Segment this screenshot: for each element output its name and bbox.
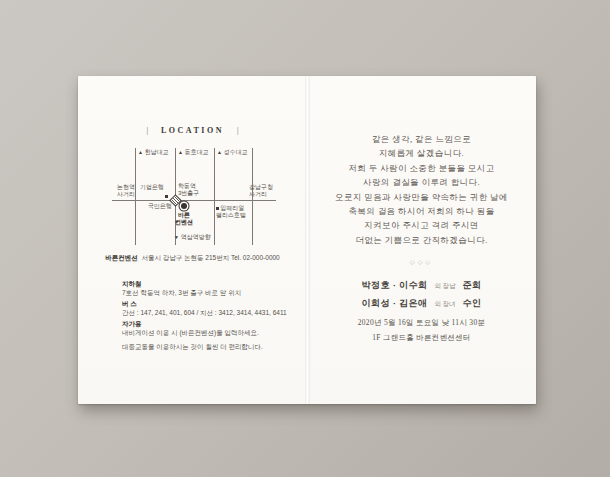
transit-note: 대중교통을 이용하시는 것이 훨씬 더 편리합니다. xyxy=(122,343,287,352)
ibk-bank-marker-icon xyxy=(165,195,168,198)
bus-description: 간선 : 147, 241, 401, 604 / 지선 : 3412, 341… xyxy=(122,309,287,318)
greeting-line: 같은 생각, 같은 느낌으로 xyxy=(307,132,536,146)
bus-heading: 버 스 xyxy=(122,300,287,309)
location-title: LOCATION xyxy=(161,126,224,135)
card-fold xyxy=(305,76,310,404)
car-heading: 자가용 xyxy=(122,320,287,329)
hotel-marker-icon xyxy=(216,207,219,210)
venue-address-detail: 서울시 강남구 논현동 215번지 Tel. 02-000-0000 xyxy=(141,254,279,261)
venue-address-name: 바른컨벤션 xyxy=(105,254,138,261)
groom-relation: 의 장남 xyxy=(434,282,455,289)
event-venue: 1F 그랜드홀 바른컨벤션센터 xyxy=(307,330,536,345)
yeoksam-direction-label: ▼ 역삼역방향 xyxy=(174,234,211,241)
greeting-line: 지혜롭게 살겠습니다. xyxy=(307,146,536,160)
subway-heading: 지하철 xyxy=(122,280,287,289)
location-header: |LOCATION| xyxy=(78,126,307,135)
greeting-line: 저희 두 사람이 소중한 분들을 모시고 xyxy=(307,161,536,175)
left-page: |LOCATION| ▲ 한남대교 ▲ 동호대교 ▲ 성수대교 논현역 사거리 xyxy=(78,76,307,404)
up-triangle-icon: ▲ xyxy=(138,149,143,155)
bride-parents: 이희성 · 김은애 xyxy=(361,298,427,308)
right-page: 같은 생각, 같은 느낌으로 지혜롭게 살겠습니다. 저희 두 사람이 소중한 … xyxy=(307,76,536,404)
greeting-line: 지켜보아 주시고 격려 주시면 xyxy=(307,218,536,232)
venue-map-label: 바른 컨벤션 xyxy=(168,212,200,226)
gangnam-office-label: 강남구청 사거리 xyxy=(249,184,273,198)
bride-relation: 의 장녀 xyxy=(434,300,455,307)
down-triangle-icon: ▼ xyxy=(174,234,179,240)
hakdong-exit-label: 학동역 3번출구 xyxy=(178,183,199,197)
venue-map: ▲ 한남대교 ▲ 동호대교 ▲ 성수대교 논현역 사거리 기업은행 학동역 3번… xyxy=(112,144,276,248)
groom-name: 준희 xyxy=(463,280,482,290)
photo-background: { "colors":{"background":"#c0bbb4","card… xyxy=(0,0,610,477)
ibk-bank-label: 기업은행 xyxy=(140,184,164,191)
venue-address: 바른컨벤션 서울시 강남구 논현동 215번지 Tel. 02-000-0000 xyxy=(78,254,307,263)
greeting-line: 더없는 기쁨으로 간직하겠습니다. xyxy=(307,233,536,247)
greeting-line: 오로지 믿음과 사랑만을 약속하는 귀한 날에 xyxy=(307,190,536,204)
bridge-label-hannam: ▲ 한남대교 xyxy=(138,149,169,156)
greeting-line: 축복의 걸음 하시어 저희의 하나 됨을 xyxy=(307,204,536,218)
nonhyeon-intersection-label: 논현역 사거리 xyxy=(117,184,135,198)
greeting-line: 사랑의 결실을 이루려 합니다. xyxy=(307,175,536,189)
family-names: 박정호 · 이수희 의 장남 준희 이희성 · 김은애 의 장녀 수인 xyxy=(307,276,536,311)
groom-parents: 박정호 · 이수희 xyxy=(361,280,427,290)
event-info: 2020년 5월 16일 토요일 낮 11시 30분 1F 그랜드홀 바른컨벤션… xyxy=(307,315,536,345)
up-triangle-icon: ▲ xyxy=(178,149,183,155)
bride-name: 수인 xyxy=(463,298,482,308)
bridge-label-dongho: ▲ 동호대교 xyxy=(178,149,209,156)
subway-description: 7호선 학동역 하차, 3번 출구 바로 앞 위치 xyxy=(122,289,287,298)
header-left-bar: | xyxy=(133,126,161,135)
groom-family-line: 박정호 · 이수희 의 장남 준희 xyxy=(307,276,536,294)
transit-directions: 지하철 7호선 학동역 하차, 3번 출구 바로 앞 위치 버 스 간선 : 1… xyxy=(122,277,287,352)
kb-bank-label: 국민은행 xyxy=(148,203,172,210)
header-right-bar: | xyxy=(224,126,252,135)
event-datetime: 2020년 5월 16일 토요일 낮 11시 30분 xyxy=(307,315,536,330)
car-description: 내비게이션 이용 시 (바른컨벤션)을 입력하세요. xyxy=(122,329,287,338)
bridge-label-seongsu: ▲ 성수대교 xyxy=(217,149,248,156)
bride-family-line: 이희성 · 김은애 의 장녀 수인 xyxy=(307,294,536,312)
diamond-divider-icon: ◇◇◇ xyxy=(307,258,536,265)
greeting-text: 같은 생각, 같은 느낌으로 지혜롭게 살겠습니다. 저희 두 사람이 소중한 … xyxy=(307,132,536,247)
up-triangle-icon: ▲ xyxy=(217,149,222,155)
venue-marker-icon xyxy=(181,203,187,209)
invitation-card: |LOCATION| ▲ 한남대교 ▲ 동호대교 ▲ 성수대교 논현역 사거리 xyxy=(78,76,536,404)
map-road-vertical-1 xyxy=(135,148,136,245)
imperial-hotel-label: 임페리얼 팰리스호텔 xyxy=(216,205,246,219)
map-road-horizontal xyxy=(112,200,276,201)
map-road-vertical-3 xyxy=(214,148,215,245)
